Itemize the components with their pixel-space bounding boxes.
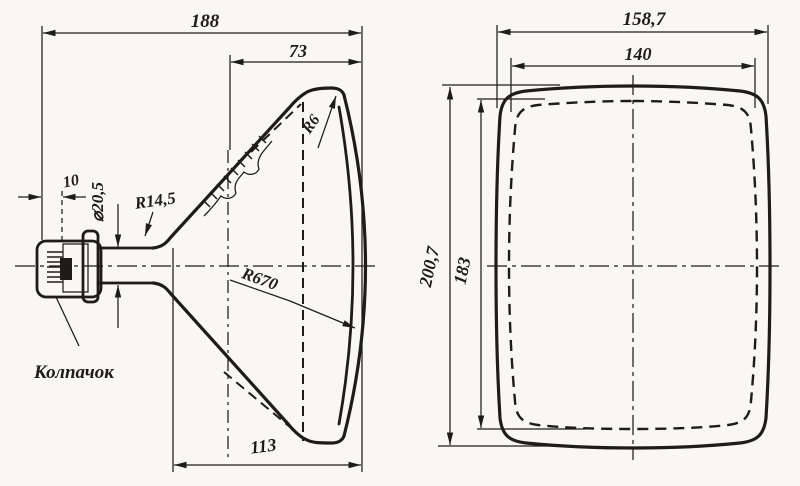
r670-label: R670 [238, 263, 281, 294]
r14-5-label: R14,5 [133, 188, 178, 213]
dim-158-7-label: 158,7 [623, 9, 667, 30]
side-view-extension-lines [42, 26, 362, 472]
anode-button-section [203, 136, 272, 216]
dim-neck-diameter-label: ⌀20,5 [88, 182, 107, 222]
inner-wall-top-hidden [251, 104, 301, 152]
dim-200-7-label: 200,7 [415, 244, 443, 290]
funnel-top-outline [153, 88, 344, 248]
funnel-bottom-outline [153, 283, 344, 443]
dim-73-label: 73 [289, 41, 307, 61]
dim-113-label: 113 [249, 435, 277, 458]
leader-r14-5 [145, 212, 153, 236]
dim-10-label: 10 [61, 172, 80, 192]
dim-188-label: 188 [191, 11, 220, 32]
base-key [60, 258, 72, 280]
cap-label: Колпачок [33, 362, 115, 383]
dim-140-label: 140 [625, 44, 652, 64]
leader-cap-label [56, 297, 79, 346]
front-view: 158,7 140 200,7 183 [415, 9, 783, 460]
crt-tube-technical-drawing: 188 73 10 ⌀20,5 R14,5 R6 R670 113 Колпач… [0, 0, 800, 486]
leader-r670 [230, 280, 355, 328]
dim-183-label: 183 [450, 255, 475, 286]
side-view: 188 73 10 ⌀20,5 R14,5 R6 R670 113 Колпач… [15, 11, 378, 472]
r6-label: R6 [298, 112, 323, 138]
drawing-sheet: 188 73 10 ⌀20,5 R14,5 R6 R670 113 Колпач… [0, 0, 800, 486]
